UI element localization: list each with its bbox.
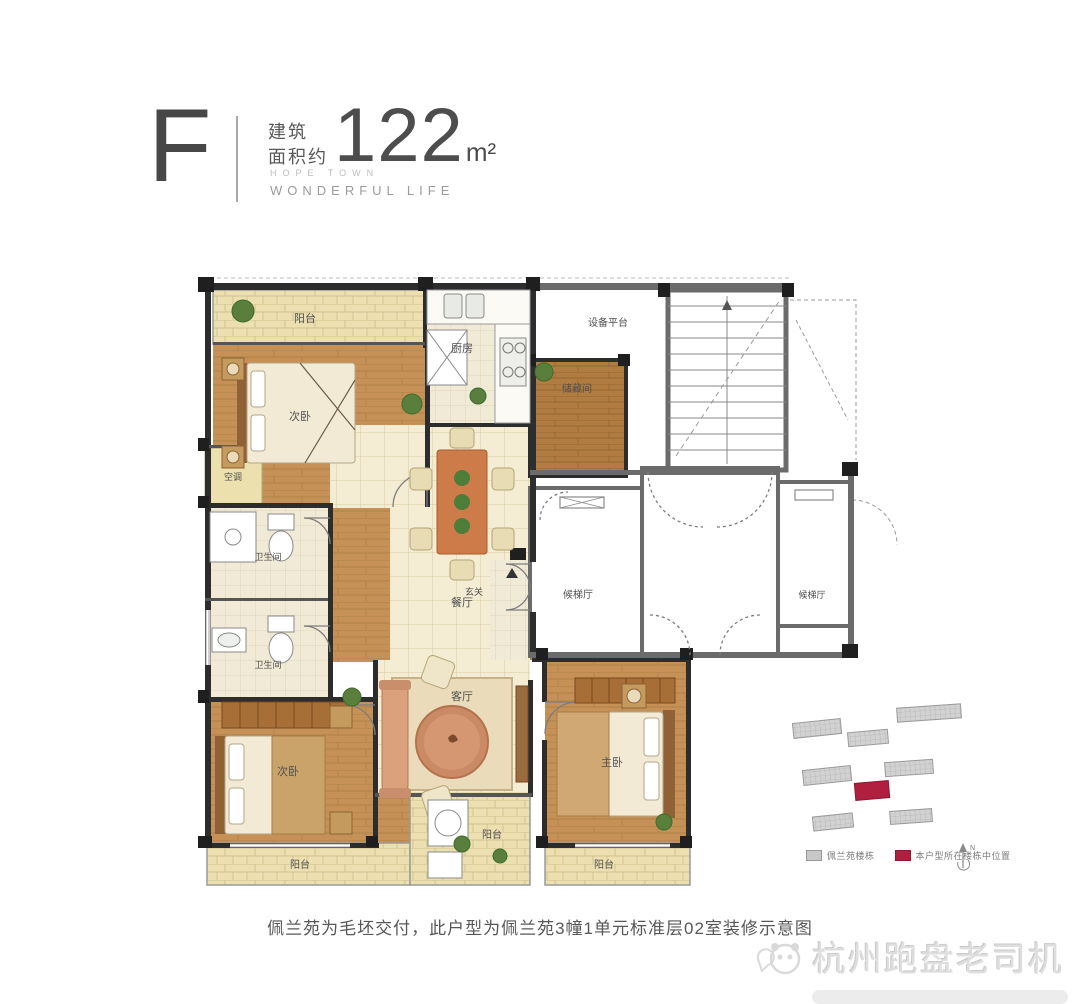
label-kitchen: 厨房 bbox=[451, 342, 473, 355]
label-bath-lower: 卫生间 bbox=[254, 659, 281, 670]
corridor-wood bbox=[332, 508, 390, 662]
site-building bbox=[847, 729, 888, 746]
legend-swatch-gray bbox=[806, 850, 822, 861]
label-bedroom-left: 次卧 bbox=[277, 764, 299, 778]
room-balcony-master bbox=[545, 843, 690, 885]
label-balcony-top: 阳台 bbox=[294, 311, 316, 325]
site-building bbox=[885, 759, 934, 776]
panda-logo-icon bbox=[752, 933, 804, 981]
label-equipment: 设备平台 bbox=[588, 316, 628, 329]
label-bedroom-top: 次卧 bbox=[289, 409, 311, 423]
label-balcony-master: 阳台 bbox=[594, 858, 614, 871]
footer-bar bbox=[812, 990, 1068, 1004]
label-ac: 空调 bbox=[224, 471, 242, 482]
label-dining: 餐厅 bbox=[451, 595, 473, 609]
legend-item-red: 本户型所在楼栋中位置 bbox=[895, 849, 1011, 862]
label-master: 主卧 bbox=[601, 756, 623, 769]
site-building-highlighted bbox=[854, 781, 889, 801]
elevator-lobby-2 bbox=[778, 482, 850, 626]
site-building bbox=[812, 813, 853, 831]
site-legend: 佩兰苑楼栋 本户型所在楼栋中位置 bbox=[806, 849, 1011, 862]
front-room bbox=[642, 468, 778, 656]
elevator-lobby bbox=[530, 488, 642, 656]
master-furniture bbox=[557, 678, 675, 818]
label-bath-upper: 卫生间 bbox=[254, 551, 281, 562]
site-building bbox=[802, 766, 851, 786]
label-lobby2: 候梯厅 bbox=[798, 589, 825, 600]
label-foyer: 玄关 bbox=[465, 586, 483, 597]
label-storage: 储藏间 bbox=[562, 382, 592, 395]
site-building bbox=[792, 719, 841, 739]
label-balcony-mid: 阳台 bbox=[482, 828, 502, 841]
label-balcony-left: 阳台 bbox=[290, 858, 310, 871]
legend-swatch-red bbox=[895, 850, 911, 861]
legend-label-red: 本户型所在楼栋中位置 bbox=[916, 849, 1011, 862]
site-building bbox=[897, 704, 962, 722]
label-living: 客厅 bbox=[451, 689, 473, 703]
legend-item-gray: 佩兰苑楼栋 bbox=[806, 849, 875, 862]
site-plan: N bbox=[792, 704, 975, 870]
site-building bbox=[890, 809, 933, 825]
watermark-text: 杭州跑盘老司机 bbox=[812, 932, 1064, 981]
living-wood-strip bbox=[377, 795, 410, 845]
watermark: 杭州跑盘老司机 bbox=[752, 932, 1064, 981]
legend-label-gray: 佩兰苑楼栋 bbox=[827, 849, 875, 862]
label-lobby: 候梯厅 bbox=[563, 588, 593, 601]
